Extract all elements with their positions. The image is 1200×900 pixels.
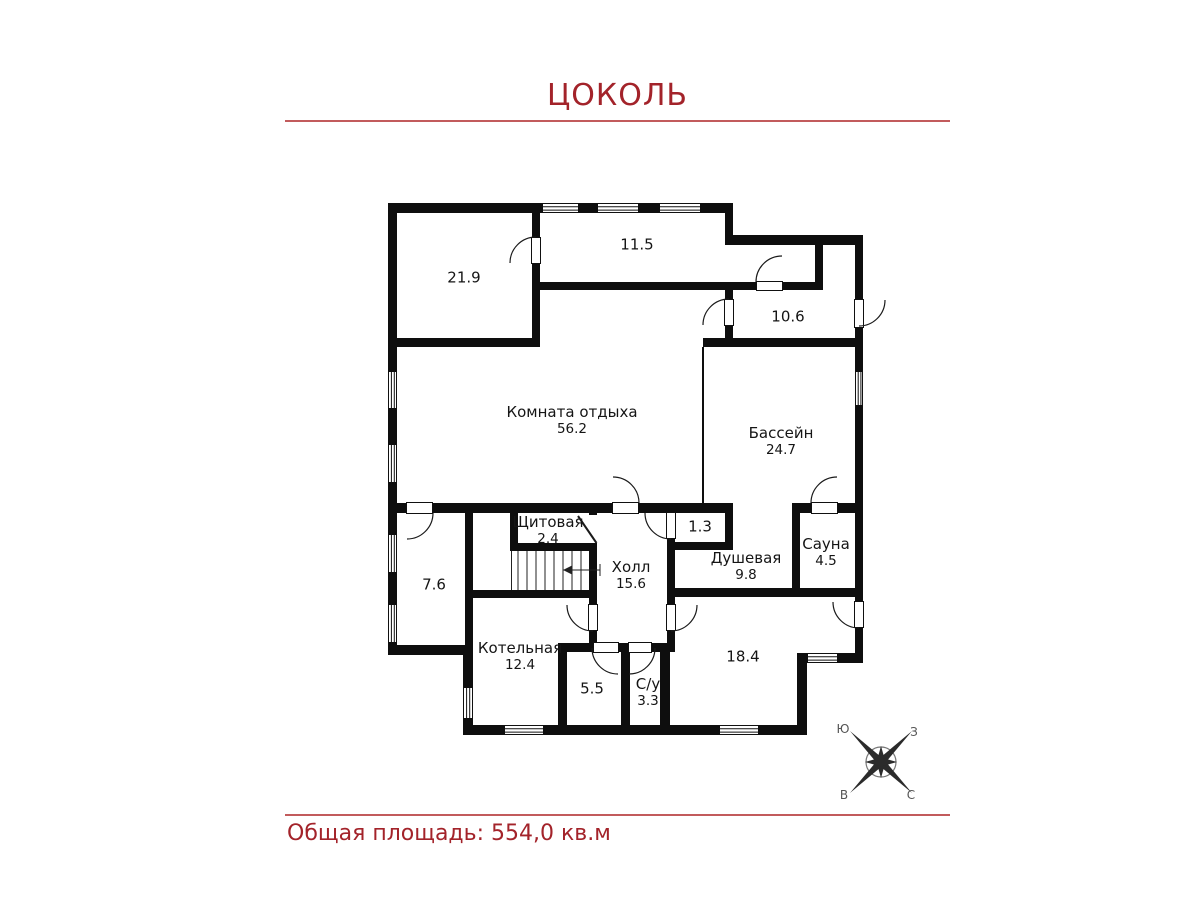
- compass-rose-icon: [850, 731, 912, 793]
- total-area-text: Общая площадь: 554,0 кв.м: [287, 821, 611, 846]
- room-label-boiler: Котельная 12.4: [478, 640, 562, 674]
- room-label-shower: Душевая 9.8: [711, 550, 782, 584]
- room-label-sauna: Сауна 4.5: [802, 536, 850, 570]
- room-label-switchboard: Щитовая 2.4: [512, 514, 583, 548]
- room-label-pool: Бассейн 24.7: [749, 425, 814, 459]
- floorplan-drawing: [0, 0, 1200, 900]
- room-label-21-9: 21.9: [447, 270, 480, 287]
- floorplan-page: ЦОКОЛЬ: [0, 0, 1200, 900]
- room-label-hall: Холл 15.6: [612, 559, 651, 593]
- room-label-wc: С/у 3.3: [636, 676, 660, 710]
- compass-label-east: В: [840, 788, 848, 802]
- staircase: [512, 551, 601, 590]
- room-label-7-6: 7.6: [422, 577, 446, 594]
- footer-divider: [285, 814, 950, 816]
- compass-label-west: З: [910, 725, 918, 739]
- room-label-lounge: Комната отдыха 56.2: [506, 404, 637, 438]
- room-label-5-5: 5.5: [580, 681, 604, 698]
- stairs-direction-arrow: [563, 566, 572, 575]
- compass-label-north: С: [907, 788, 915, 802]
- room-label-18-4: 18.4: [726, 649, 759, 666]
- room-label-1-3: 1.3: [688, 519, 712, 536]
- room-label-10-6: 10.6: [771, 309, 804, 326]
- compass-label-south: Ю: [837, 722, 850, 736]
- room-label-11-5: 11.5: [620, 237, 653, 254]
